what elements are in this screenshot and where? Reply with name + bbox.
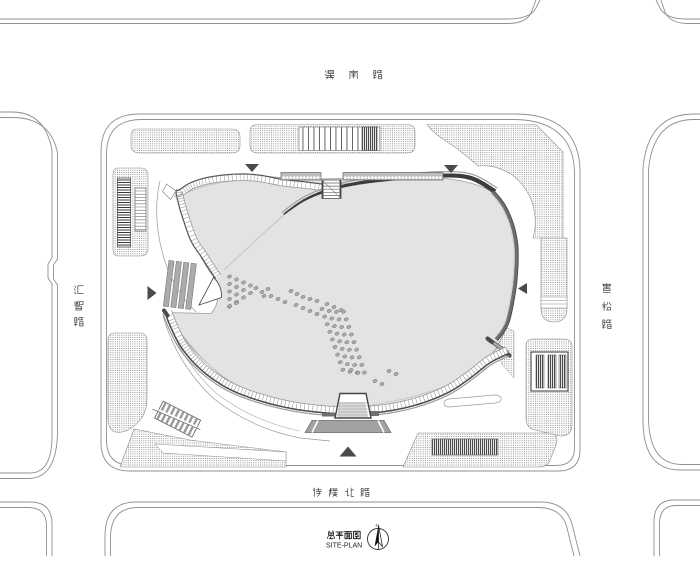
svg-text:SITE-PLAN: SITE-PLAN [326, 543, 362, 550]
svg-text:N: N [376, 523, 379, 528]
